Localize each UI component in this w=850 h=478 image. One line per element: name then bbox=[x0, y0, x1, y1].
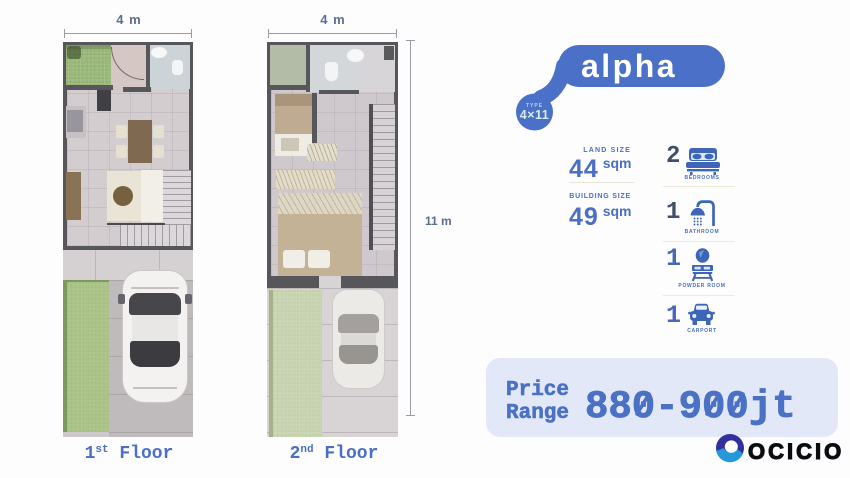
svg-text:alpha: alpha bbox=[581, 48, 677, 84]
svg-text:4×11: 4×11 bbox=[520, 108, 549, 122]
